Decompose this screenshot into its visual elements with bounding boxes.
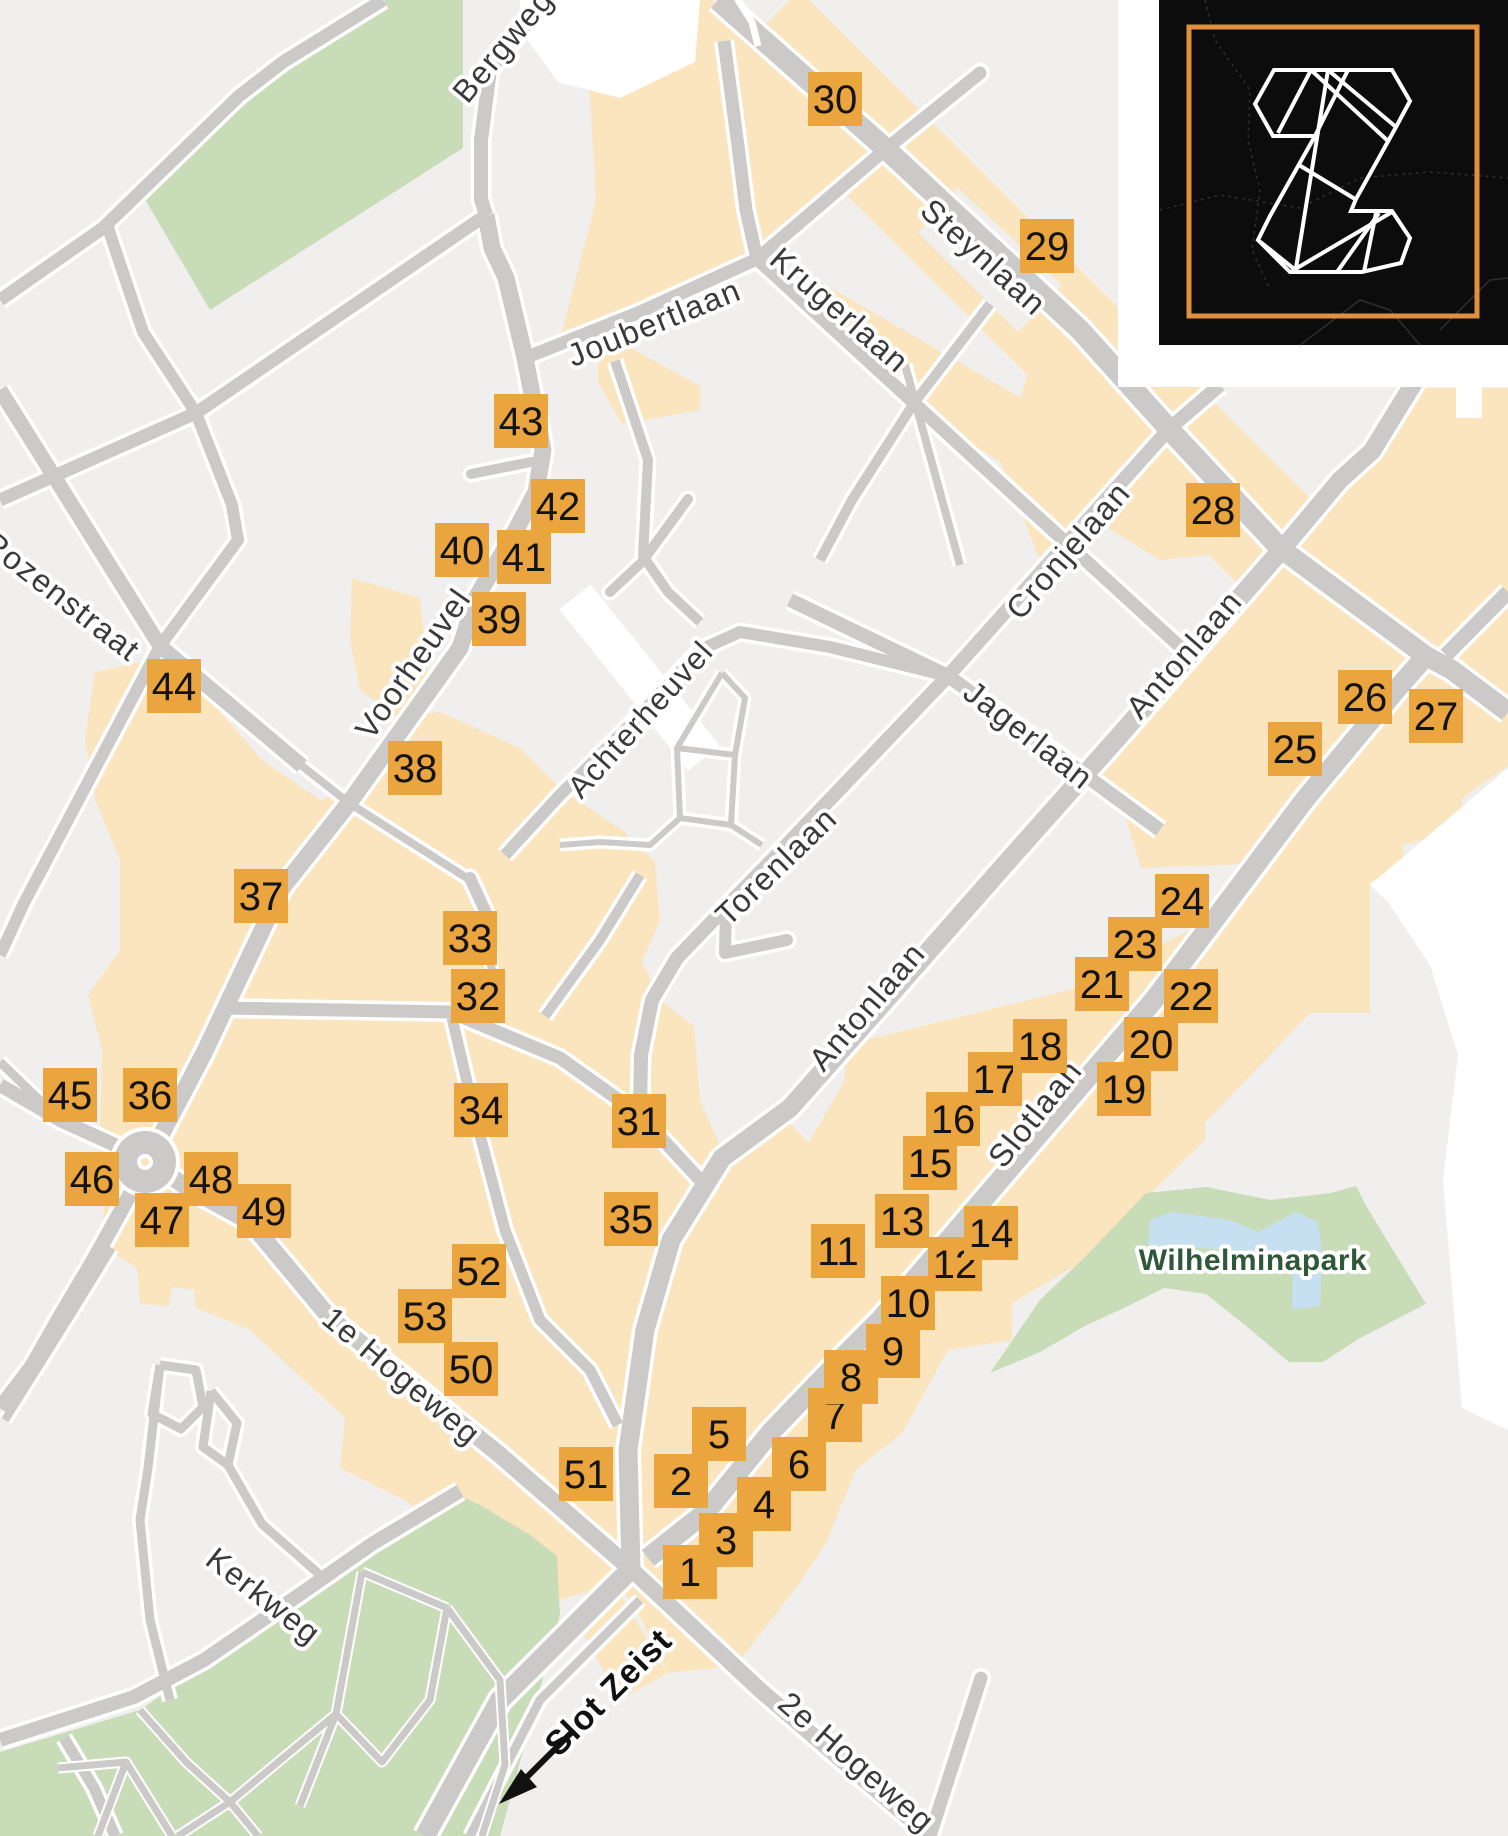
svg-text:13: 13 (880, 1200, 925, 1244)
svg-text:6: 6 (788, 1443, 810, 1487)
svg-text:23: 23 (1113, 923, 1158, 967)
svg-text:46: 46 (70, 1158, 115, 1202)
svg-text:34: 34 (459, 1089, 504, 1133)
svg-text:2: 2 (670, 1460, 692, 1504)
svg-text:10: 10 (886, 1282, 931, 1326)
svg-text:51: 51 (564, 1453, 609, 1497)
svg-text:15: 15 (908, 1142, 953, 1186)
svg-text:43: 43 (499, 400, 544, 444)
svg-text:47: 47 (140, 1199, 185, 1243)
svg-text:5: 5 (708, 1413, 730, 1457)
svg-text:30: 30 (813, 78, 858, 122)
svg-text:33: 33 (448, 917, 493, 961)
svg-text:50: 50 (449, 1348, 494, 1392)
svg-text:18: 18 (1018, 1025, 1063, 1069)
svg-text:35: 35 (609, 1198, 654, 1242)
svg-text:14: 14 (969, 1212, 1014, 1256)
svg-text:25: 25 (1273, 728, 1318, 772)
svg-text:40: 40 (440, 529, 485, 573)
svg-text:29: 29 (1025, 225, 1070, 269)
svg-text:28: 28 (1191, 489, 1236, 533)
svg-text:27: 27 (1414, 695, 1459, 739)
svg-text:41: 41 (502, 536, 547, 580)
svg-text:39: 39 (477, 598, 522, 642)
svg-text:22: 22 (1169, 975, 1214, 1019)
svg-text:17: 17 (973, 1058, 1018, 1102)
svg-text:4: 4 (753, 1483, 775, 1527)
svg-text:53: 53 (403, 1295, 448, 1339)
svg-text:19: 19 (1102, 1068, 1147, 1112)
svg-text:45: 45 (48, 1074, 93, 1118)
svg-text:42: 42 (536, 485, 581, 529)
svg-text:11: 11 (817, 1230, 859, 1274)
svg-text:3: 3 (715, 1519, 737, 1563)
svg-text:31: 31 (617, 1100, 662, 1144)
svg-text:26: 26 (1343, 676, 1388, 720)
svg-text:20: 20 (1129, 1023, 1174, 1067)
svg-text:8: 8 (840, 1356, 862, 1400)
svg-text:44: 44 (152, 665, 197, 709)
svg-text:49: 49 (242, 1190, 287, 1234)
svg-text:32: 32 (456, 975, 501, 1019)
svg-text:48: 48 (189, 1158, 234, 1202)
svg-text:24: 24 (1160, 880, 1205, 924)
svg-text:9: 9 (882, 1330, 904, 1374)
svg-text:52: 52 (457, 1250, 502, 1294)
svg-text:36: 36 (128, 1074, 173, 1118)
svg-text:38: 38 (393, 747, 438, 791)
svg-text:Wilhelminapark: Wilhelminapark (1139, 1244, 1367, 1277)
svg-text:37: 37 (239, 875, 284, 919)
svg-text:1: 1 (679, 1551, 701, 1595)
